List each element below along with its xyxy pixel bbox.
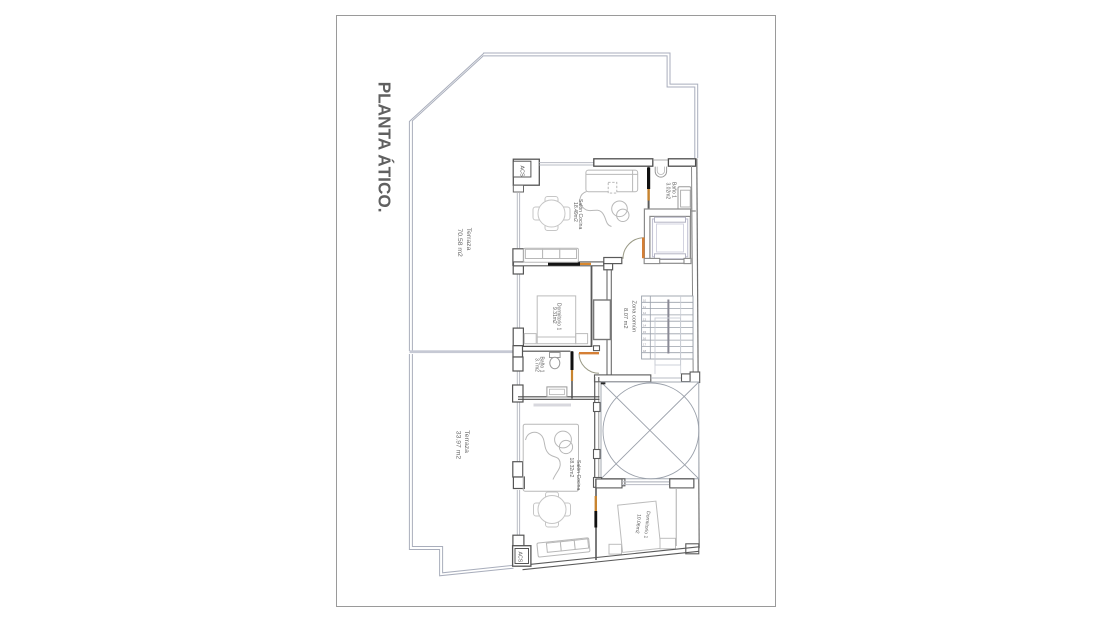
svg-text:PLANTA ÁTICO.: PLANTA ÁTICO. [375, 82, 395, 213]
svg-text:33.97 m2: 33.97 m2 [454, 431, 461, 460]
svg-text:17: 17 [643, 343, 647, 347]
svg-text:15: 15 [643, 330, 647, 334]
svg-text:ACS: ACS [519, 166, 525, 177]
svg-text:3.02m2: 3.02m2 [665, 183, 671, 200]
svg-text:Terraza: Terraza [463, 430, 470, 453]
svg-text:Salón Cocina: Salón Cocina [575, 460, 581, 490]
svg-text:18: 18 [643, 349, 647, 353]
svg-text:Zona común: Zona común [631, 301, 637, 333]
svg-text:9.31m2: 9.31m2 [551, 307, 557, 324]
svg-text:8.07 m2: 8.07 m2 [622, 308, 628, 329]
svg-text:ACS: ACS [517, 552, 523, 563]
svg-text:18.32m2: 18.32m2 [568, 458, 574, 478]
svg-text:70.58 m2: 70.58 m2 [456, 229, 463, 258]
svg-text:13: 13 [643, 317, 647, 321]
svg-text:10: 10 [643, 299, 647, 303]
svg-text:Terraza: Terraza [465, 228, 472, 251]
svg-text:18.49m2: 18.49m2 [572, 202, 578, 222]
svg-text:3.7m2: 3.7m2 [534, 358, 540, 372]
svg-text:11: 11 [643, 305, 646, 309]
svg-text:14: 14 [643, 324, 647, 328]
svg-text:16: 16 [643, 336, 647, 340]
svg-text:12: 12 [643, 311, 647, 315]
